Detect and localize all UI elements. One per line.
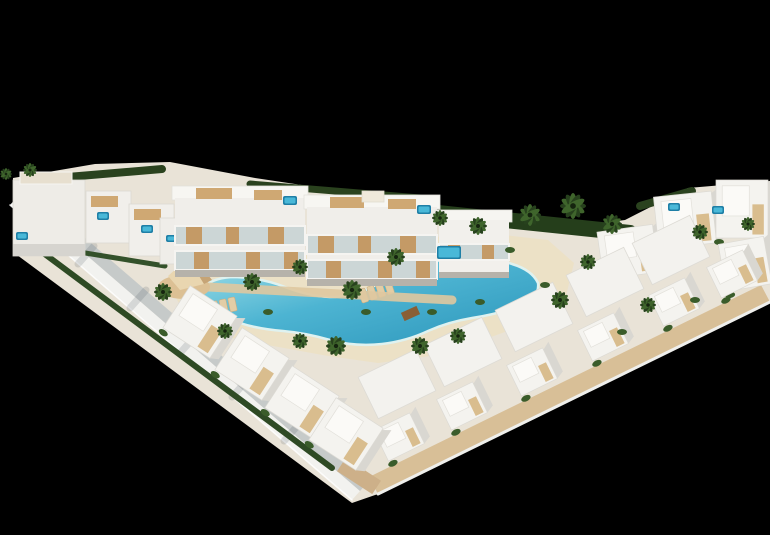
apartment-base-shadow [439,272,509,278]
roof-spa [283,196,297,205]
wood-panel [268,226,284,245]
wood-panel [226,226,239,245]
wood-panel [378,260,392,279]
garden-spa [16,232,28,240]
shrub [690,297,700,303]
roof-deck-wood [330,197,364,208]
wood-panel [246,251,260,270]
townhouse-base-shadow [13,244,85,256]
wood-panel [326,260,341,279]
roof-deck-wood [196,188,232,199]
palm-tree [0,168,12,180]
roof-spa [417,205,431,214]
shrub [540,282,550,288]
wood-panel [194,251,209,270]
scene-root [0,162,770,503]
shrub [361,309,371,315]
palm-tree [560,193,586,219]
roof-deck-wood [388,199,416,209]
roof-spa [97,212,109,220]
roof-spa [141,225,153,233]
wood-panel [416,260,430,279]
screenshot-canvas [0,0,770,535]
roof-deck-wood [254,190,282,200]
shrub [617,329,627,335]
apartment-base-shadow [175,270,305,277]
wood-panel [358,235,371,254]
wood-panel [186,226,202,245]
stair-bulkhead [362,191,384,202]
shrub [427,309,437,315]
wood-panel [400,235,416,254]
wood-panel [318,235,334,254]
shrub [505,247,515,253]
roof-spa [668,203,680,211]
terrace-pool [437,246,461,259]
roof-deck-wood [134,209,161,220]
wood-panel [482,244,494,260]
aerial-render-residential-complex [0,0,770,535]
shrub [475,299,485,305]
shrub [263,309,273,315]
roof-spa [712,206,724,214]
roof-deck-wood [91,196,118,207]
apartment-base-shadow [307,279,437,286]
